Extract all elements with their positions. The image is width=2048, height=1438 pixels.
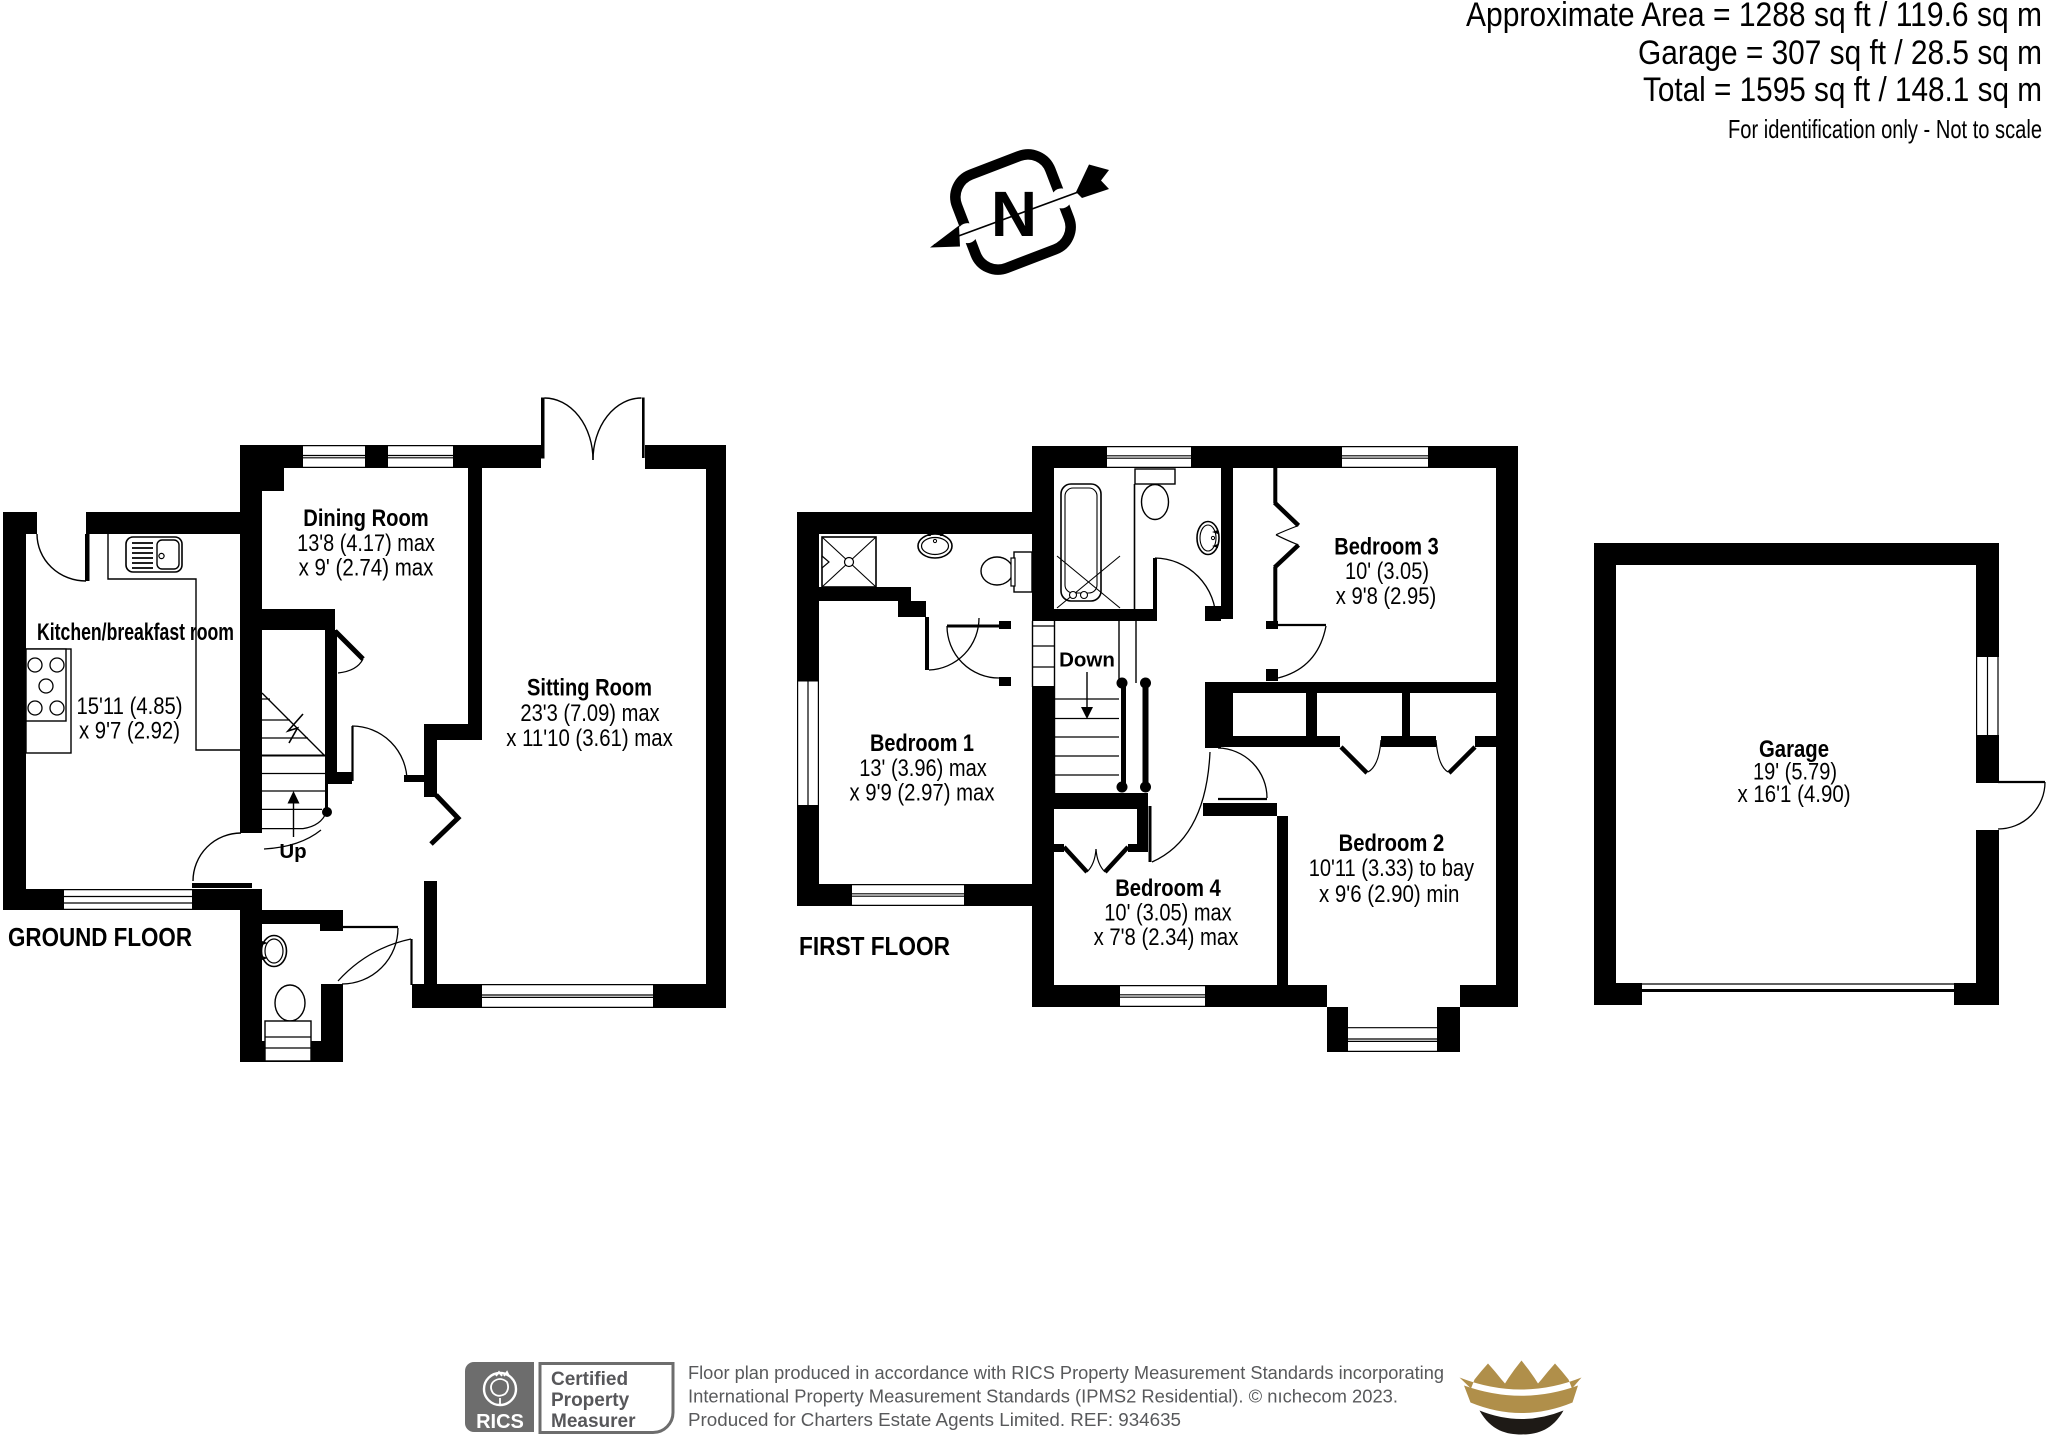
svg-text:International Property Measure: International Property Measurement Stand… (688, 1387, 1398, 1407)
svg-text:Garage = 307 sq ft / 28.5 sq m: Garage = 307 sq ft / 28.5 sq m (1638, 34, 2042, 72)
svg-text:x 9'8 (2.95): x 9'8 (2.95) (1336, 583, 1437, 610)
svg-text:15'11 (4.85): 15'11 (4.85) (77, 693, 183, 720)
svg-text:Kitchen/breakfast room: Kitchen/breakfast room (37, 619, 234, 646)
svg-text:Total = 1595 sq ft / 148.1 sq: Total = 1595 sq ft / 148.1 sq m (1643, 71, 2042, 109)
svg-text:For identification only - Not: For identification only - Not to scale (1728, 114, 2042, 144)
svg-text:x 9' (2.74) max: x 9' (2.74) max (299, 555, 434, 582)
svg-text:FIRST FLOOR: FIRST FLOOR (799, 931, 950, 961)
svg-text:13' (3.96) max: 13' (3.96) max (859, 755, 987, 782)
svg-text:Sitting Room: Sitting Room (527, 675, 652, 702)
svg-text:x 9'7 (2.92): x 9'7 (2.92) (79, 718, 180, 745)
svg-text:Bedroom 1: Bedroom 1 (870, 730, 974, 757)
svg-text:Bedroom 2: Bedroom 2 (1339, 830, 1445, 857)
svg-text:Bedroom 4: Bedroom 4 (1115, 875, 1221, 902)
svg-text:Property: Property (551, 1390, 630, 1411)
svg-text:x 7'8 (2.34) max: x 7'8 (2.34) max (1094, 924, 1239, 951)
svg-text:Dining Room: Dining Room (303, 505, 429, 532)
svg-text:x 9'6 (2.90) min: x 9'6 (2.90) min (1319, 881, 1459, 908)
svg-text:Approximate Area = 1288 sq ft: Approximate Area = 1288 sq ft / 119.6 sq… (1466, 0, 2042, 34)
svg-text:x 11'10 (3.61) max: x 11'10 (3.61) max (506, 725, 673, 752)
svg-text:Up: Up (279, 840, 306, 863)
svg-text:23'3 (7.09) max: 23'3 (7.09) max (520, 700, 659, 727)
svg-text:Certified: Certified (551, 1369, 628, 1390)
svg-text:x 9'9 (2.97) max: x 9'9 (2.97) max (850, 780, 995, 807)
svg-text:13'8 (4.17) max: 13'8 (4.17) max (297, 530, 435, 557)
svg-text:Bedroom 3: Bedroom 3 (1334, 534, 1438, 561)
svg-text:Produced for Charters Estate A: Produced for Charters Estate Agents Limi… (688, 1410, 1181, 1430)
svg-text:N: N (991, 178, 1037, 250)
svg-text:Measurer: Measurer (551, 1411, 636, 1432)
svg-text:Down: Down (1059, 649, 1115, 672)
svg-text:RICS: RICS (476, 1411, 524, 1433)
svg-text:10' (3.05) max: 10' (3.05) max (1104, 900, 1231, 927)
svg-text:Floor plan produced in accorda: Floor plan produced in accordance with R… (688, 1363, 1444, 1383)
svg-text:10' (3.05): 10' (3.05) (1345, 558, 1429, 585)
svg-text:GROUND FLOOR: GROUND FLOOR (8, 922, 192, 952)
svg-text:10'11 (3.33) to bay: 10'11 (3.33) to bay (1309, 855, 1474, 882)
svg-text:x 16'1 (4.90): x 16'1 (4.90) (1738, 781, 1851, 808)
